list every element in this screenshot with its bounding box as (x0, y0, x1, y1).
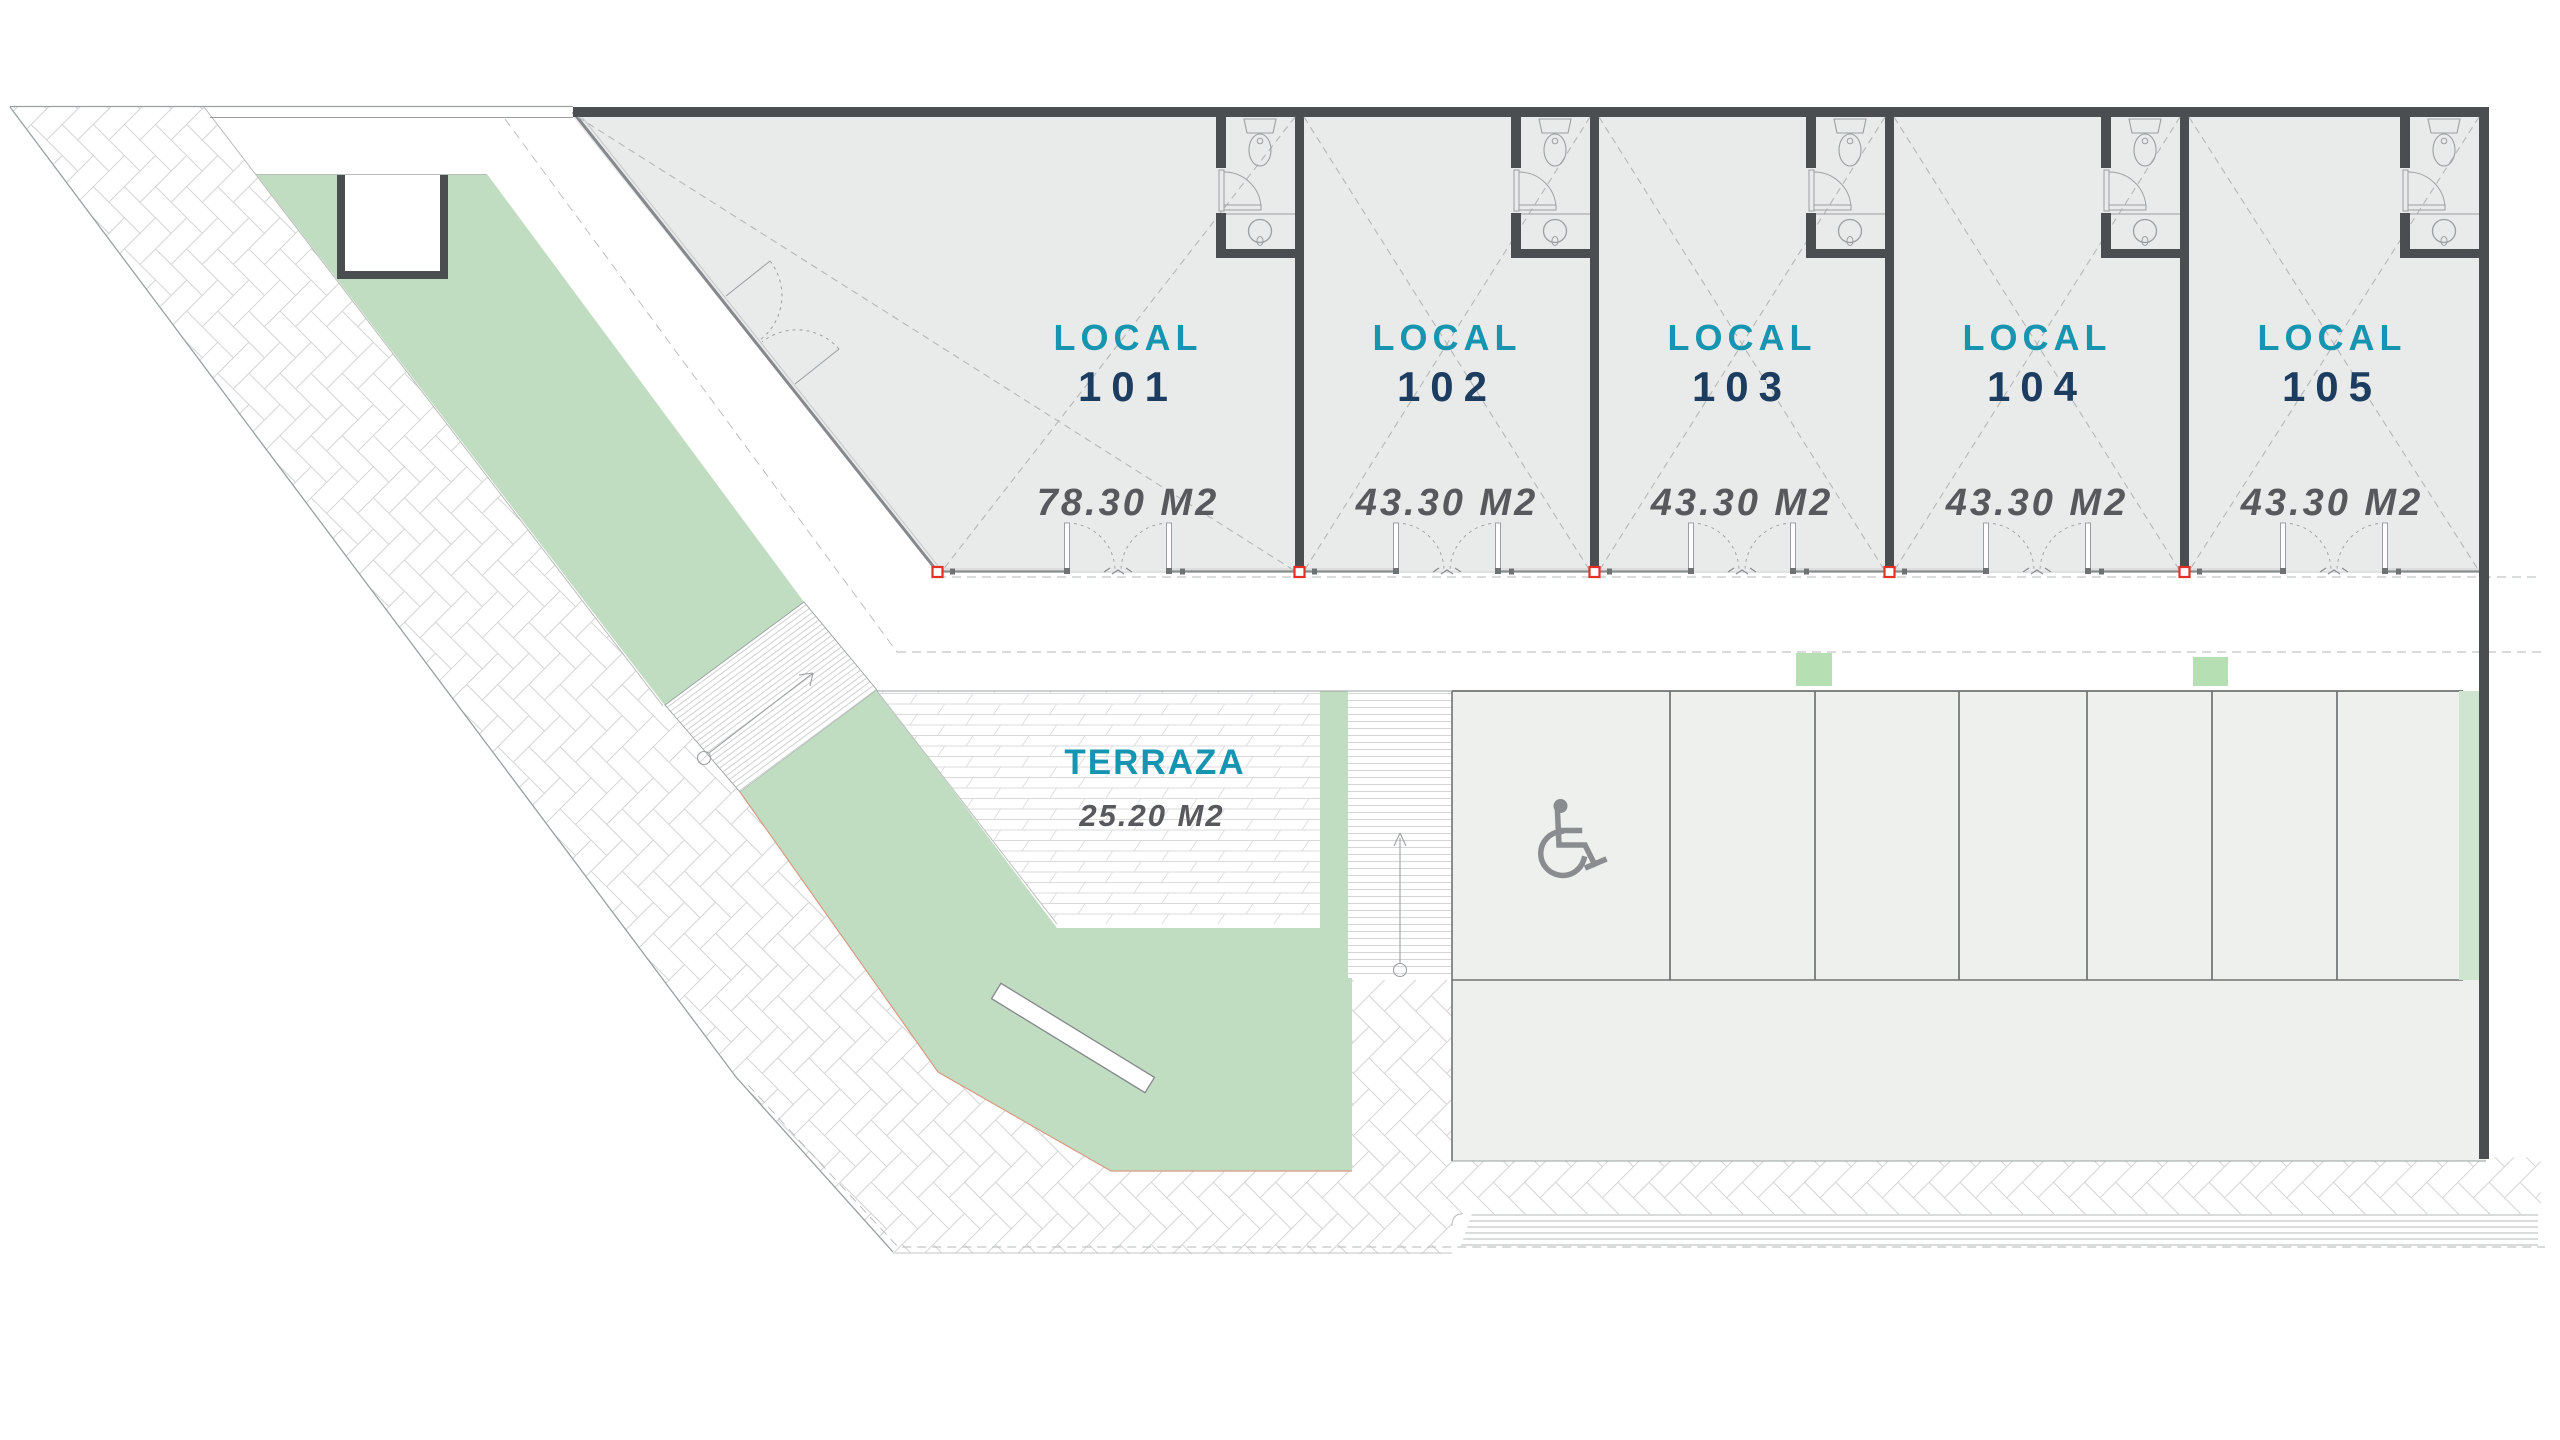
svg-text:LOCAL: LOCAL (1963, 317, 2112, 358)
svg-text:43.30 M2: 43.30 M2 (2240, 482, 2423, 524)
svg-text:LOCAL: LOCAL (1373, 317, 1522, 358)
svg-text:LOCAL: LOCAL (2258, 317, 2407, 358)
svg-text:43.30 M2: 43.30 M2 (1650, 482, 1833, 524)
svg-text:LOCAL: LOCAL (1054, 317, 1203, 358)
svg-text:102: 102 (1397, 363, 1497, 410)
svg-text:25.20 M2: 25.20 M2 (1078, 798, 1224, 833)
svg-text:LOCAL: LOCAL (1668, 317, 1817, 358)
svg-text:43.30 M2: 43.30 M2 (1355, 482, 1538, 524)
svg-text:101: 101 (1078, 363, 1178, 410)
svg-text:43.30 M2: 43.30 M2 (1945, 482, 2128, 524)
svg-text:105: 105 (2282, 363, 2382, 410)
svg-text:78.30 M2: 78.30 M2 (1037, 482, 1219, 524)
svg-text:104: 104 (1987, 363, 2087, 410)
svg-text:TERRAZA: TERRAZA (1064, 743, 1245, 782)
svg-text:103: 103 (1692, 363, 1792, 410)
